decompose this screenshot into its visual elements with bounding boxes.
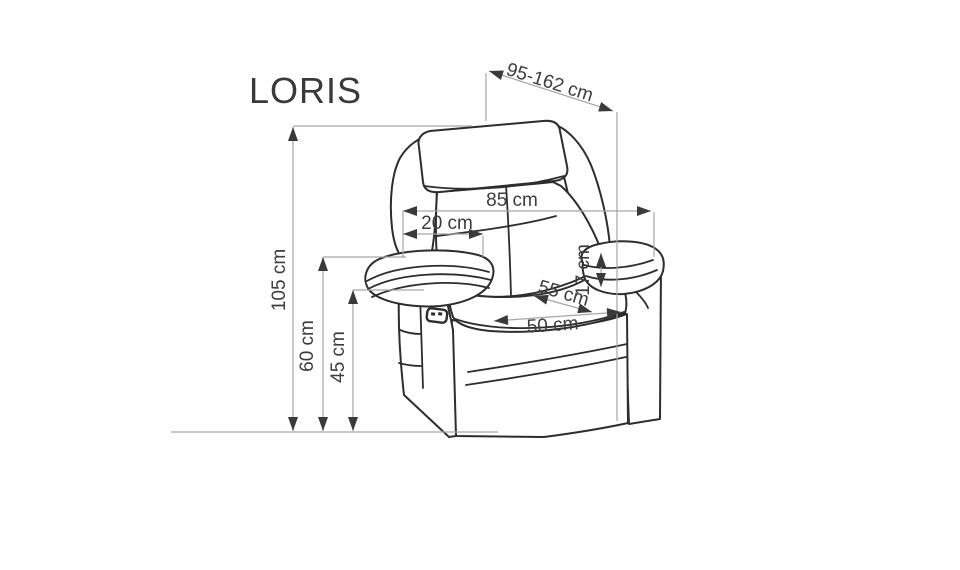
control-panel	[426, 308, 447, 323]
recliner-illustration	[365, 121, 663, 437]
dim-label-seat-height: 45 cm	[328, 331, 349, 383]
product-title: LORIS	[249, 70, 362, 111]
dim-label-reclined-depth: 95-162 cm	[504, 59, 596, 106]
diagram-canvas: 95-162 cm 85 cm 20 cm 17 cm 55 cm 50 cm …	[0, 0, 960, 570]
recliner-dimension-diagram: 95-162 cm 85 cm 20 cm 17 cm 55 cm 50 cm …	[0, 0, 960, 570]
dim-label-seat-width: 50 cm	[526, 313, 579, 338]
control-button-2	[438, 312, 442, 315]
dim-label-arm-height: 60 cm	[297, 320, 318, 372]
dim-label-headrest-depth: 20 cm	[421, 213, 473, 234]
dim-label-back-width: 85 cm	[486, 190, 538, 211]
control-button-1	[431, 312, 435, 315]
dim-label-total-height: 105 cm	[269, 249, 290, 311]
control-panel-body	[426, 308, 447, 323]
